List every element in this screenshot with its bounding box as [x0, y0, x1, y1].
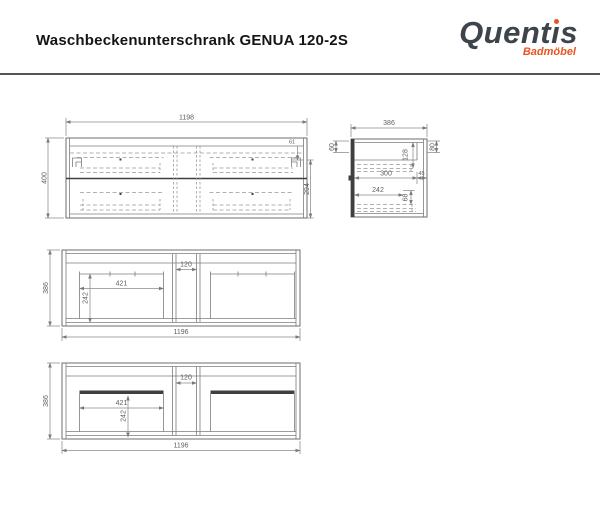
top-view-middle-dimensions: 386 1196 120 421 242 — [43, 250, 300, 341]
dim-side-inner-depth: 300 — [380, 171, 392, 178]
front-view-outline — [66, 138, 307, 218]
dim-side-depth: 386 — [383, 120, 395, 127]
side-view-bottom-drawer — [357, 205, 416, 212]
dim-side-top-left: 60 — [329, 143, 336, 151]
dim-topbot-cutout-depth: 242 — [121, 410, 128, 422]
side-view: 386 60 80 128 300 45 242 68 — [329, 120, 440, 217]
dim-topbot-gap: 120 — [180, 375, 192, 382]
top-view-middle-cutouts — [80, 272, 295, 319]
dim-side-lower-inner-depth: 242 — [372, 187, 384, 194]
dim-topmid-depth: 386 — [43, 282, 50, 294]
top-view-bottom: 386 1196 120 421 242 — [43, 363, 300, 454]
dim-front-lower-height: 294 — [304, 183, 311, 195]
dim-topmid-width: 1196 — [173, 329, 188, 336]
dim-front-width: 1198 — [179, 115, 194, 122]
front-view-bottom-drawer — [80, 193, 293, 211]
dim-side-drawer-inner-height: 128 — [403, 149, 410, 161]
dim-topbot-width: 1196 — [173, 443, 188, 450]
technical-drawing: 1198 400 61 294 — [0, 0, 600, 516]
dim-topmid-gap: 120 — [180, 262, 192, 269]
dim-side-lower-inner-height: 68 — [403, 194, 410, 202]
dim-side-back-gap: 45 — [418, 171, 424, 177]
front-view-top-drawer — [73, 158, 301, 173]
dim-topbot-cutout-width: 421 — [116, 400, 128, 407]
dim-side-top-right: 80 — [430, 143, 437, 151]
top-view-middle: 386 1196 120 421 242 — [43, 250, 300, 341]
front-view-dimensions: 1198 400 61 294 — [42, 115, 314, 219]
dim-front-height: 400 — [42, 172, 49, 184]
dim-front-top-offset: 61 — [289, 140, 295, 146]
front-view: 1198 400 61 294 — [42, 115, 314, 219]
dim-topbot-depth: 386 — [43, 395, 50, 407]
top-view-bottom-dimensions: 386 1196 120 421 242 — [43, 363, 300, 454]
dim-topmid-cutout-depth: 242 — [83, 292, 90, 304]
dim-topmid-cutout-width: 421 — [116, 281, 128, 288]
top-view-bottom-cutouts — [80, 391, 295, 432]
